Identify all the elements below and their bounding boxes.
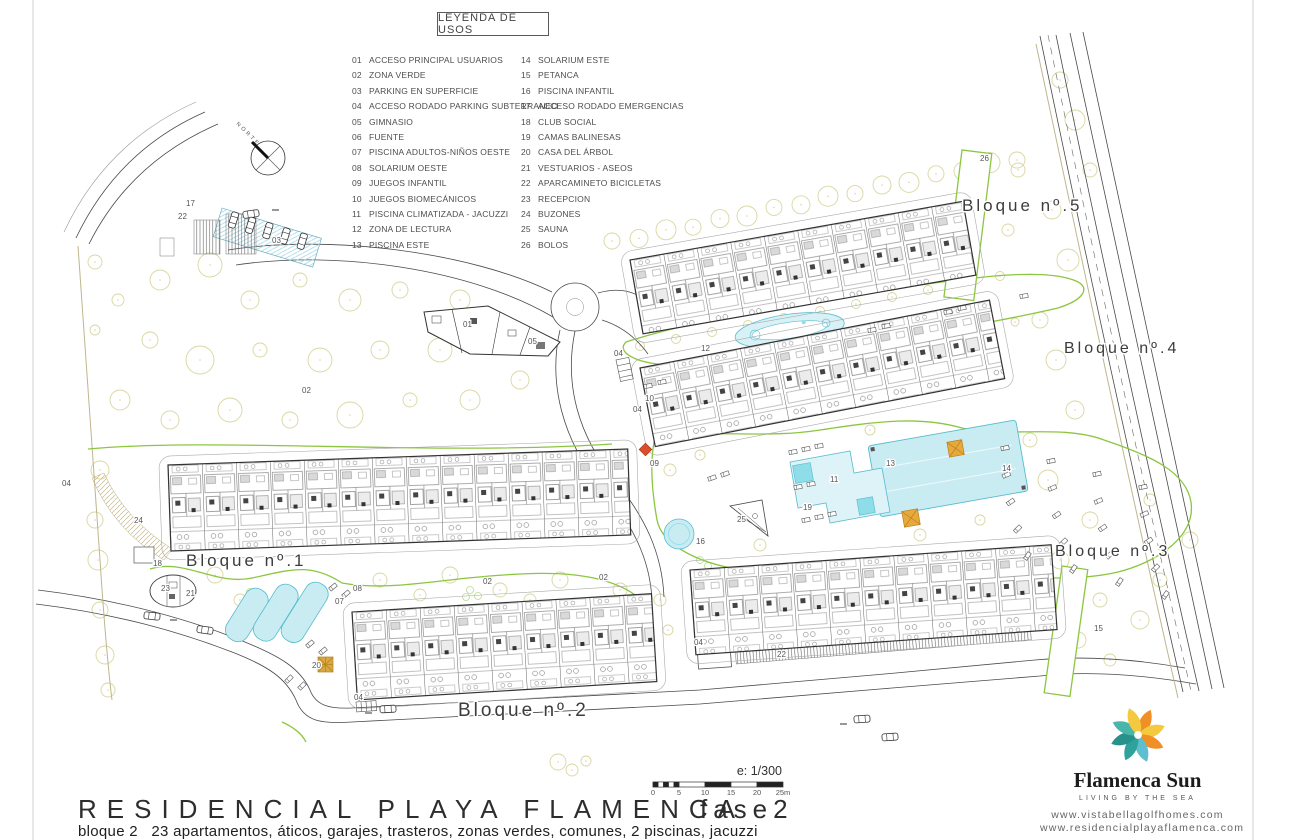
legend-item-number: 16 (521, 84, 538, 99)
legend-item-number: 19 (521, 130, 538, 145)
car-icon (380, 705, 396, 713)
legend-item-number: 06 (352, 130, 369, 145)
legend-item: 16PISCINA INFANTIL (521, 84, 684, 99)
plan-annotation: 12 (701, 344, 710, 353)
plan-annotation: 04 (354, 693, 363, 702)
plan-annotation: 17 (186, 199, 195, 208)
compass-label: NORTE (235, 121, 262, 148)
legend-item-label: PISCINA ESTE (369, 240, 430, 250)
scale-label: e: 1/300 (737, 764, 782, 778)
plan-annotation: 19 (803, 503, 812, 512)
roundabout (551, 283, 599, 331)
sun-lounger-icon (298, 682, 306, 690)
plan-annotation: 08 (353, 584, 362, 593)
sun-lounger-icon (1013, 525, 1021, 533)
sun-lounger-icon (1093, 471, 1102, 477)
legend-item-number: 11 (352, 207, 369, 222)
legend-item-label: PETANCA (538, 70, 579, 80)
legend-item-label: CLUB SOCIAL (538, 117, 596, 127)
plan-annotation: 10 (645, 394, 654, 403)
plan-annotation: 21 (186, 589, 195, 598)
playground-marker (639, 443, 652, 456)
sun-lounger-icon (1140, 511, 1149, 518)
legend-item-label: PISCINA CLIMATIZADA - JACUZZI (369, 209, 508, 219)
legend-item-label: BOLOS (538, 240, 568, 250)
plan-annotation: 22 (777, 650, 786, 659)
sun-lounger-icon (319, 647, 328, 655)
legend-item-label: PARKING EN SUPERFICIE (369, 86, 478, 96)
brand-url: www.vistabellagolfhomes.com (1040, 809, 1235, 822)
project-subtitle: bloque 2 23 apartamentos, áticos, garaje… (78, 823, 758, 840)
plan-annotation: 16 (696, 537, 705, 546)
scale-bar: e: 1/300 0510152025m (651, 764, 790, 797)
legend-title: LEYENDA DE USOS (438, 12, 548, 36)
entry-road (236, 260, 553, 317)
legend-item: 17ACCESO RODADO EMERGENCIAS (521, 99, 684, 114)
legend-item-number: 12 (352, 222, 369, 237)
shrub-icon (463, 594, 470, 601)
small-green (282, 722, 306, 742)
club-social (134, 547, 154, 563)
plan-annotation: 02 (599, 573, 608, 582)
legend-item-label: SOLARIUM OESTE (369, 163, 447, 173)
legend-item-number: 25 (521, 222, 538, 237)
sun-lounger-icon (802, 517, 811, 522)
car-icon (197, 625, 214, 634)
east-road (1070, 33, 1212, 689)
legend-item-label: ACCESO RODADO EMERGENCIAS (538, 101, 684, 111)
car-icon (854, 715, 870, 723)
legend-item-label: FUENTE (369, 132, 404, 142)
sun-lounger-icon (285, 675, 293, 683)
legend-item-number: 23 (521, 192, 538, 207)
plan-annotation: 23 (161, 584, 170, 593)
plan-annotation: 04 (614, 349, 623, 358)
legend-item-number: 07 (352, 145, 369, 160)
plan-annotation: 03 (272, 236, 281, 245)
sun-swirl-logo-icon (1107, 704, 1169, 766)
legend-item-number: 26 (521, 238, 538, 253)
plan-annotation: 02 (302, 386, 311, 395)
block-1 (159, 440, 640, 561)
sun-lounger-icon (306, 640, 315, 648)
plan-annotation: 20 (312, 661, 321, 670)
legend-item-number: 03 (352, 84, 369, 99)
curved-road (64, 102, 196, 232)
plan-annotation: 25 (737, 515, 746, 524)
legend-column-2: 14SOLARIUM ESTE15PETANCA16PISCINA INFANT… (521, 53, 684, 253)
entrance-building (424, 306, 560, 356)
legend-item-label: VESTUARIOS - ASEOS (538, 163, 633, 173)
sun-lounger-icon (1094, 498, 1103, 505)
bike-parking-west (160, 214, 256, 256)
sun-lounger-icon (1052, 511, 1061, 519)
legend-item-number: 22 (521, 176, 538, 191)
plan-annotation: 13 (886, 459, 895, 468)
plan-annotation: 05 (528, 337, 537, 346)
plan-annotation: 04 (62, 479, 71, 488)
legend-item-number: 24 (521, 207, 538, 222)
plan-annotation: 18 (153, 559, 162, 568)
plan-annotation: 09 (650, 459, 659, 468)
legend-item-number: 04 (352, 99, 369, 114)
legend-title-box: LEYENDA DE USOS (437, 12, 549, 36)
sun-lounger-icon (1047, 458, 1056, 464)
legend-item-number: 10 (352, 192, 369, 207)
sun-lounger-icon (1048, 485, 1057, 492)
sun-lounger-icon (329, 583, 338, 591)
legend-item-label: SAUNA (538, 224, 568, 234)
brand-block: Flamenca Sun LIVING BY THE SEA www.vista… (1040, 704, 1235, 835)
plan-annotation: 07 (335, 597, 344, 606)
legend-item-number: 02 (352, 68, 369, 83)
legend-item-number: 21 (521, 161, 538, 176)
legend-item-label: JUEGOS BIOMECÁNICOS (369, 194, 476, 204)
legend-item-label: RECEPCION (538, 194, 590, 204)
block-label: Bloque nº.3 (1055, 543, 1170, 560)
plan-annotation: 02 (483, 577, 492, 586)
balinese-bed (947, 440, 964, 457)
legend-item-label: ACCESO PRINCIPAL USUARIOS (369, 55, 503, 65)
legend-item-number: 17 (521, 99, 538, 114)
sun-lounger-icon (1151, 564, 1159, 572)
roundabout-center (567, 299, 584, 316)
legend-item: 22APARCAMINETO BICICLETAS (521, 176, 684, 191)
plan-annotation: 24 (134, 516, 143, 525)
brand-urls: www.vistabellagolfhomes.comwww.residenci… (1040, 809, 1235, 835)
shrub-icon (475, 593, 482, 600)
site-plan-sheet: NORTE e: 1/300 0510152025m 1722030202020… (0, 0, 1290, 840)
sun-lounger-icon (1162, 591, 1170, 600)
pool-west (221, 578, 332, 647)
sun-lounger-icon (1006, 498, 1015, 506)
project-phase: fase2 (700, 794, 794, 825)
legend-item-label: PISCINA INFANTIL (538, 86, 614, 96)
legend-item-label: GIMNASIO (369, 117, 413, 127)
plan-annotation: 14 (1002, 464, 1011, 473)
legend-item: 18CLUB SOCIAL (521, 115, 684, 130)
legend-item-number: 18 (521, 115, 538, 130)
legend-item-number: 09 (352, 176, 369, 191)
legend-item: 14SOLARIUM ESTE (521, 53, 684, 68)
sun-lounger-icon (815, 443, 824, 448)
brand-url: www.residencialplayaflamenca.com (1040, 822, 1235, 835)
plan-annotation: 04 (694, 638, 703, 647)
sun-lounger-icon (802, 446, 811, 451)
sauna-building (730, 500, 768, 536)
block-label: Bloque nº.5 (962, 196, 1083, 215)
legend-item: 24BUZONES (521, 207, 684, 222)
legend-item: 15PETANCA (521, 68, 684, 83)
legend-item-number: 15 (521, 68, 538, 83)
sun-lounger-icon (789, 449, 798, 454)
legend-item-number: 14 (521, 53, 538, 68)
car-icon (144, 612, 161, 621)
plan-annotation: 15 (1094, 624, 1103, 633)
plan-annotation: 04 (633, 405, 642, 414)
legend-item-number: 13 (352, 238, 369, 253)
legend-item-label: ZONA VERDE (369, 70, 426, 80)
brand-tagline: LIVING BY THE SEA (1040, 795, 1235, 802)
project-title: RESIDENCIAL PLAYA FLAMENCA (78, 794, 745, 825)
legend-item-label: CASA DEL ÁRBOL (538, 147, 613, 157)
sun-lounger-icon (1116, 578, 1124, 587)
sun-lounger-icon (1139, 484, 1148, 490)
green-edge (88, 444, 612, 449)
legend-item-label: JUEGOS INFANTIL (369, 178, 447, 188)
legend-item: 20CASA DEL ÁRBOL (521, 145, 684, 160)
plan-annotation: 26 (980, 154, 989, 163)
legend-item: 23RECEPCION (521, 192, 684, 207)
legend-item: 26BOLOS (521, 238, 684, 253)
plan-annotation: 11 (830, 475, 839, 484)
legend-item: 19CAMAS BALINESAS (521, 130, 684, 145)
block-label: Bloque nº.1 (186, 551, 307, 570)
plan-annotation: 01 (463, 320, 472, 329)
legend-item: 21VESTUARIOS - ASEOS (521, 161, 684, 176)
sun-lounger-icon (1098, 524, 1107, 532)
legend-item-number: 08 (352, 161, 369, 176)
brand-name: Flamenca Sun (1040, 768, 1235, 793)
compass-rose: NORTE (235, 121, 285, 175)
sun-lounger-icon (815, 514, 824, 519)
block-label: Bloque nº.4 (1064, 340, 1179, 357)
legend-item-label: ZONA DE LECTURA (369, 224, 451, 234)
balinese-bed (902, 509, 921, 528)
block-label: Bloque nº.2 (458, 700, 589, 721)
legend-item-label: CAMAS BALINESAS (538, 132, 621, 142)
legend-item-number: 20 (521, 145, 538, 160)
sun-lounger-icon (708, 475, 717, 481)
legend-item-label: SOLARIUM ESTE (538, 55, 610, 65)
legend-item-label: PISCINA ADULTOS-NIÑOS OESTE (369, 147, 510, 157)
sun-lounger-icon (1020, 293, 1029, 298)
car-icon (882, 733, 898, 741)
legend-item-label: APARCAMINETO BICICLETAS (538, 178, 661, 188)
legend-item-label: BUZONES (538, 209, 581, 219)
plan-annotation: 22 (178, 212, 187, 221)
legend-item: 25SAUNA (521, 222, 684, 237)
legend-item-number: 01 (352, 53, 369, 68)
block-2 (342, 584, 666, 709)
shrub-icon (467, 587, 474, 594)
sun-lounger-icon (721, 471, 730, 477)
legend-item-number: 05 (352, 115, 369, 130)
